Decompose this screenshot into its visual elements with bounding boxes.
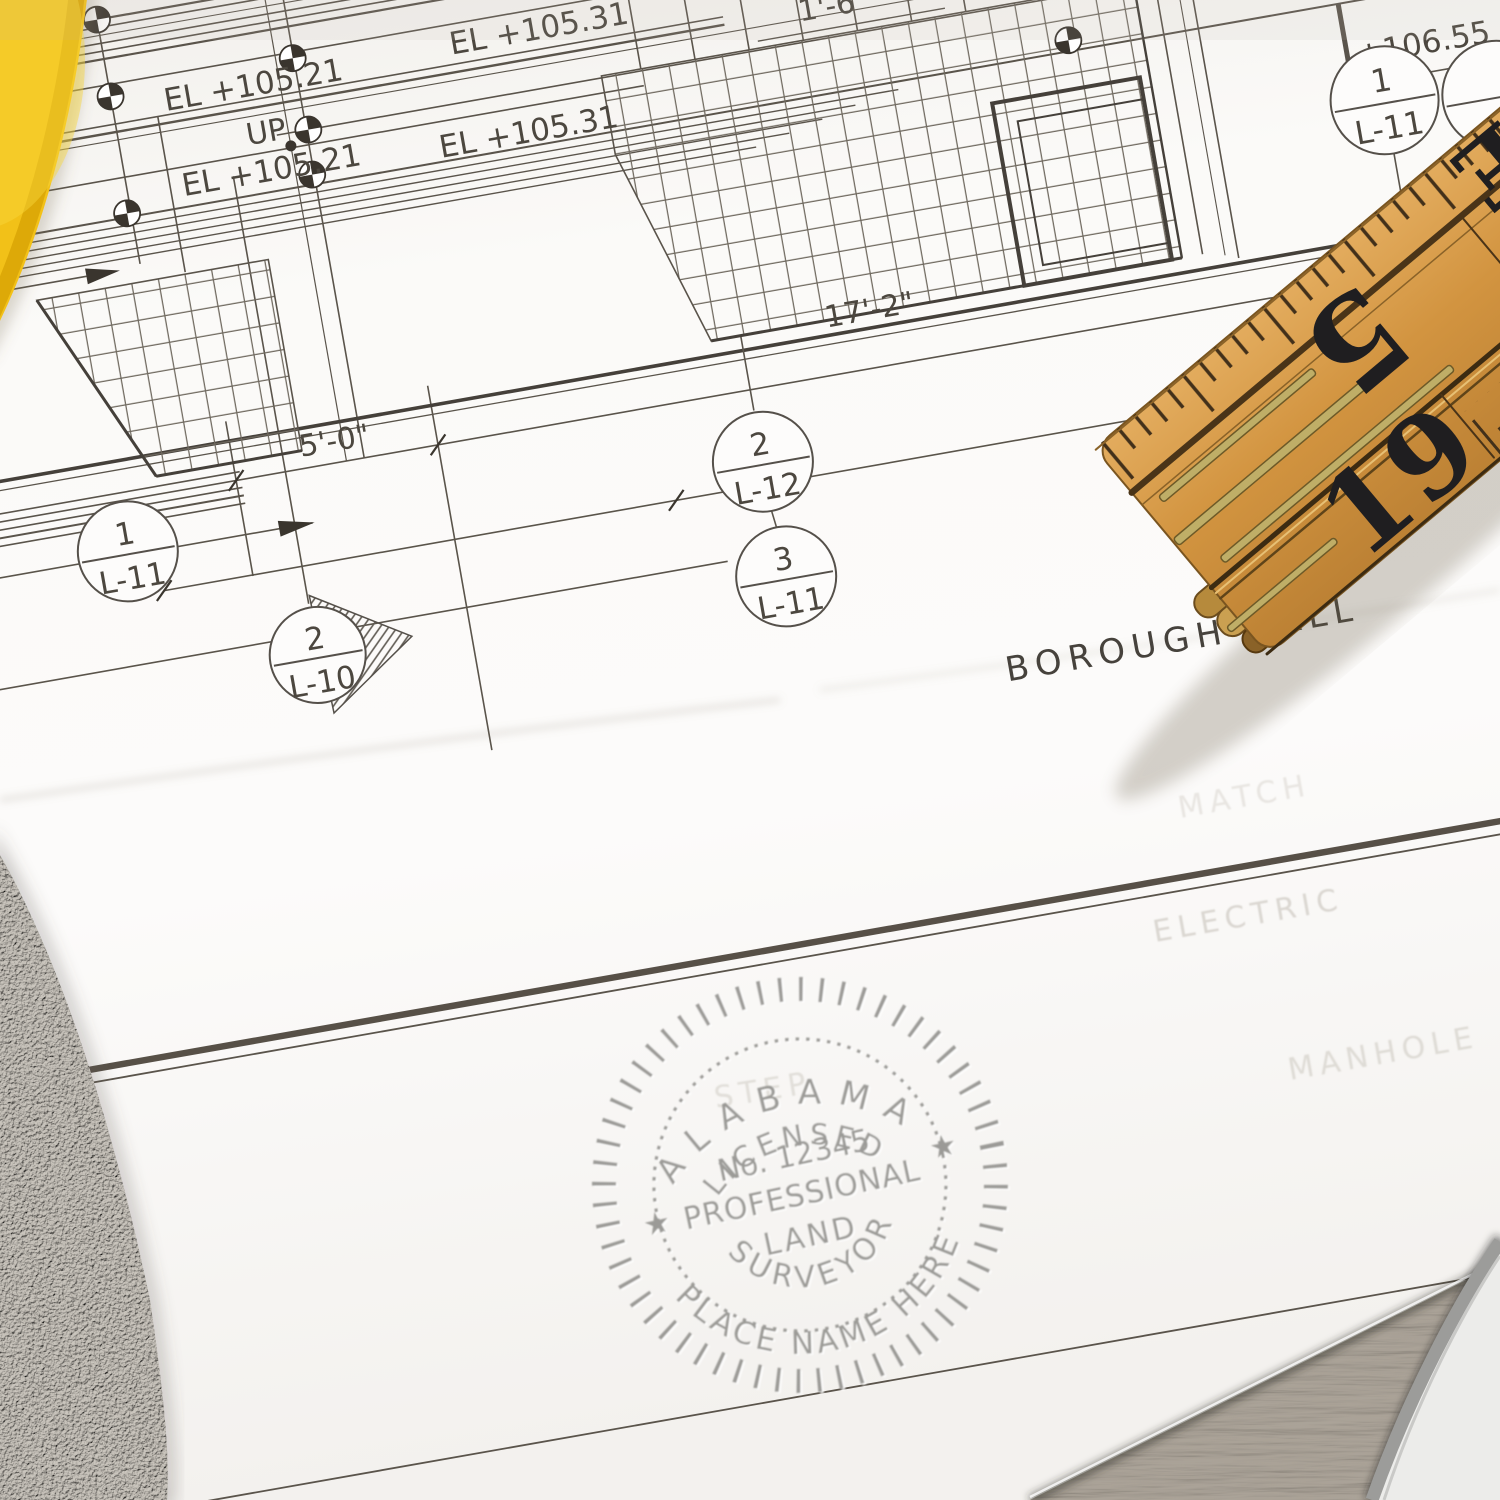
scene-svg: ELECTRIC MANHOLE STEP MATCH [0, 0, 1500, 1500]
photo-of-blueprint: ELECTRIC MANHOLE STEP MATCH [0, 0, 1500, 1500]
up-label: UP [243, 112, 289, 153]
top-vignette [0, 0, 1500, 40]
